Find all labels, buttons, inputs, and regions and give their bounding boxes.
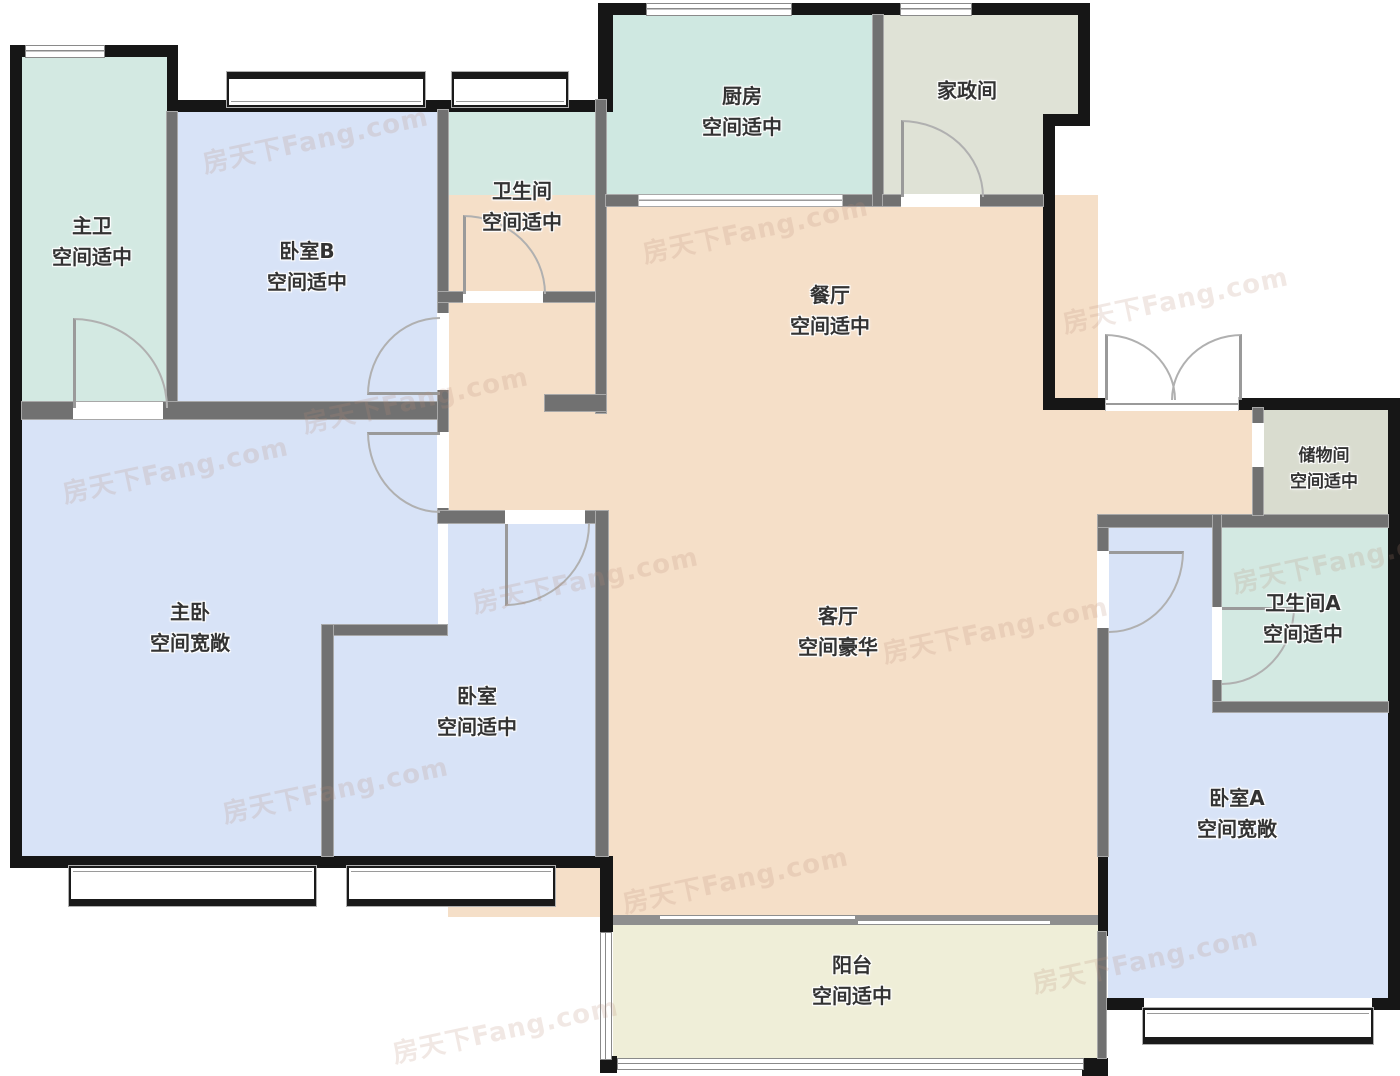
wall xyxy=(596,511,608,856)
window xyxy=(646,3,792,16)
wall xyxy=(1043,114,1055,410)
bay-window xyxy=(227,72,425,107)
wall xyxy=(10,45,22,868)
door-opening xyxy=(505,510,585,524)
watermark: 房天下Fang.com xyxy=(389,986,622,1070)
balcony-window xyxy=(617,1058,1084,1070)
room-note: 空间宽敞 xyxy=(1197,817,1277,841)
bay-window xyxy=(347,866,555,906)
room-name: 卫生间A xyxy=(1265,591,1340,615)
room-note: 空间适中 xyxy=(267,270,347,294)
bay-window xyxy=(69,866,316,906)
room-bedroom-floor xyxy=(333,635,448,856)
room-foyer-floor xyxy=(1098,410,1262,515)
room-name: 卫生间 xyxy=(492,179,552,203)
wall xyxy=(598,3,613,103)
room-name: 阳台 xyxy=(832,953,872,977)
room-name: 主卫 xyxy=(72,214,112,238)
room-name: 主卧 xyxy=(170,600,210,624)
room-name: 客厅 xyxy=(818,604,858,628)
room-label-service: 家政间 xyxy=(937,76,997,107)
room-label-bathroom-a: 卫生间A 空间适中 xyxy=(1263,588,1343,650)
room-name: 卧室A xyxy=(1209,786,1264,810)
room-note: 空间适中 xyxy=(790,314,870,338)
room-label-master-bath: 主卫 空间适中 xyxy=(52,211,132,273)
bay-window xyxy=(1143,1008,1373,1044)
room-label-bedroom: 卧室 空间适中 xyxy=(437,681,517,743)
kitchen-opening xyxy=(638,195,843,206)
balcony-window xyxy=(600,932,612,1060)
room-note: 空间适中 xyxy=(437,715,517,739)
wall xyxy=(600,856,613,932)
room-note: 空间适中 xyxy=(702,115,782,139)
room-note: 空间适中 xyxy=(52,245,132,269)
door-opening xyxy=(1252,423,1264,467)
wall xyxy=(1098,515,1388,527)
room-name: 卧室B xyxy=(279,239,334,263)
room-label-balcony: 阳台 空间适中 xyxy=(812,950,892,1012)
room-label-bedroom-b: 卧室B 空间适中 xyxy=(267,236,347,298)
sliding-door xyxy=(613,915,1098,925)
entry-door-arc xyxy=(1105,334,1176,400)
wall xyxy=(1082,1058,1108,1076)
wall xyxy=(1372,998,1400,1010)
room-label-living: 客厅 空间豪华 xyxy=(798,601,878,663)
room-note: 空间适中 xyxy=(1263,622,1343,646)
wall xyxy=(1098,932,1106,1058)
window xyxy=(25,45,105,58)
floor-plan: 主卫 空间适中 卧室B 空间适中 卫生间 空间适中 厨房 空间适中 家政间 餐厅… xyxy=(0,0,1400,1076)
wall xyxy=(322,625,333,856)
room-name: 厨房 xyxy=(722,84,762,108)
door-opening xyxy=(1212,607,1222,680)
wall xyxy=(167,45,178,112)
entry-door-arc xyxy=(1171,334,1242,400)
door-opening xyxy=(1097,551,1109,628)
room-name: 餐厅 xyxy=(810,283,850,307)
room-name: 卧室 xyxy=(457,684,497,708)
wall xyxy=(596,100,606,413)
room-label-kitchen: 厨房 空间适中 xyxy=(702,81,782,143)
room-name: 家政间 xyxy=(937,79,997,103)
room-note: 空间适中 xyxy=(1290,472,1358,492)
wall xyxy=(545,395,606,411)
wall xyxy=(167,112,177,418)
wall xyxy=(1078,3,1090,126)
bay-window xyxy=(452,72,568,107)
wall xyxy=(322,625,447,635)
wall xyxy=(873,15,883,206)
room-label-master-bedroom: 主卧 空间宽敞 xyxy=(150,597,230,659)
window xyxy=(900,3,972,16)
room-label-bathroom: 卫生间 空间适中 xyxy=(482,176,562,238)
room-label-storage: 储物间 空间适中 xyxy=(1290,443,1358,495)
room-note: 空间宽敞 xyxy=(150,631,230,655)
wall xyxy=(1098,856,1108,936)
room-note: 空间适中 xyxy=(812,984,892,1008)
room-name: 储物间 xyxy=(1299,446,1350,466)
room-label-bedroom-a: 卧室A 空间宽敞 xyxy=(1197,783,1277,845)
room-note: 空间适中 xyxy=(482,210,562,234)
room-note: 空间豪华 xyxy=(798,635,878,659)
wall xyxy=(1213,702,1388,712)
room-label-dining: 餐厅 空间适中 xyxy=(790,280,870,342)
wall xyxy=(1388,398,1400,1010)
